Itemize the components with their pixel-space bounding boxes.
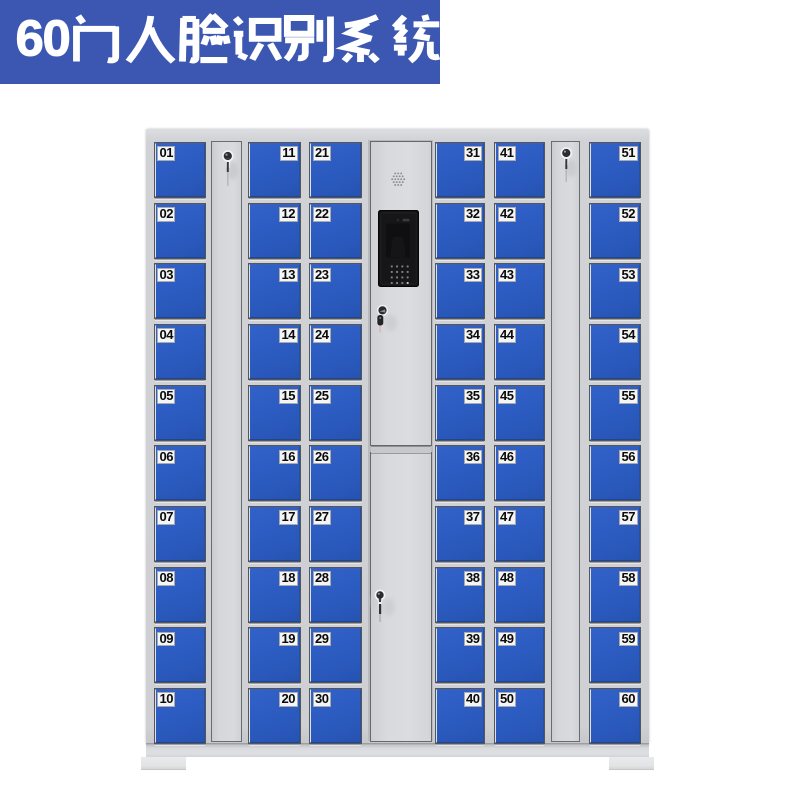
svg-text:60: 60 bbox=[16, 9, 70, 66]
